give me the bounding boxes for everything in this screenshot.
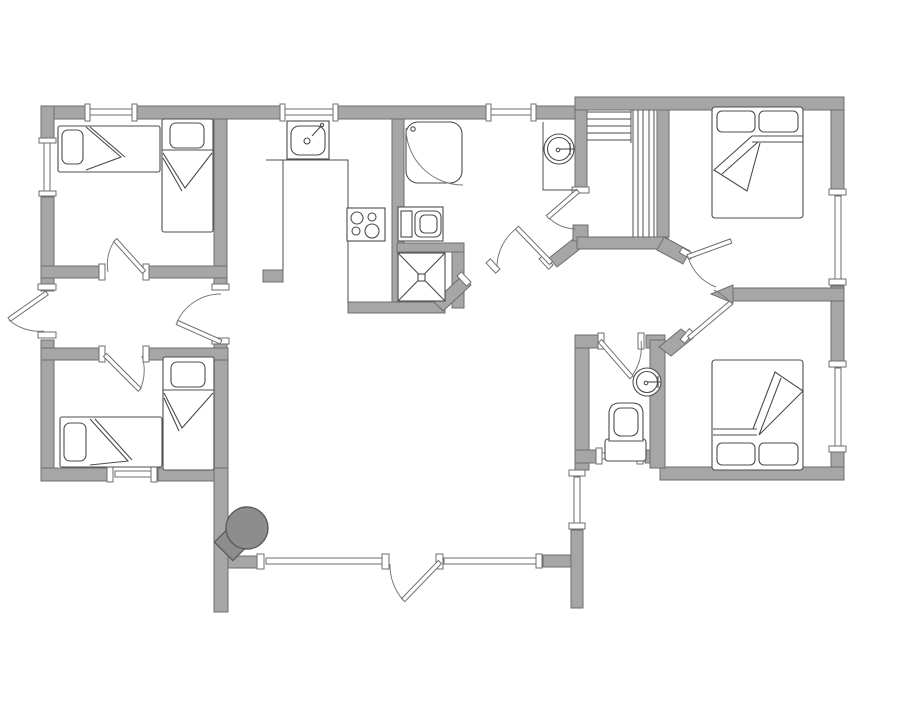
hall-living-door (176, 294, 222, 344)
sauna-bench-side (633, 110, 654, 237)
floor-plan-canvas (0, 0, 903, 714)
bedroom-br-door (688, 290, 733, 340)
kitchen-sink (287, 121, 329, 159)
corner-shower (406, 122, 463, 185)
kitchen (263, 121, 385, 303)
wc-door (598, 340, 641, 379)
single-bed-tl-vertical (162, 119, 213, 232)
washing-machine (398, 207, 443, 241)
sauna (587, 110, 654, 237)
bedroom-tl-door (107, 239, 145, 274)
toilet (605, 403, 646, 461)
sauna-lobby (543, 122, 577, 190)
sauna-lobby-door (546, 189, 579, 229)
round-washbasin-wc (633, 368, 661, 396)
bedroom-bl-door (103, 353, 144, 391)
stove-body (226, 507, 268, 549)
double-bed-top-right (712, 107, 803, 218)
double-bed-bottom-right (712, 360, 803, 470)
counter-end-post (263, 270, 283, 282)
entrance-door (8, 291, 48, 331)
stove-4-burners (347, 208, 385, 241)
single-bed-tl-horizontal (58, 126, 160, 172)
round-washbasin-sauna (544, 134, 574, 164)
patio-door (390, 560, 442, 601)
single-bed-bl-vertical (163, 357, 214, 470)
single-bed-bl-horizontal (60, 417, 162, 467)
doors (8, 189, 732, 601)
floor-unit-x-box (398, 253, 445, 301)
sauna-bench-upper (587, 110, 631, 143)
bedroom-tr-door (687, 239, 732, 287)
